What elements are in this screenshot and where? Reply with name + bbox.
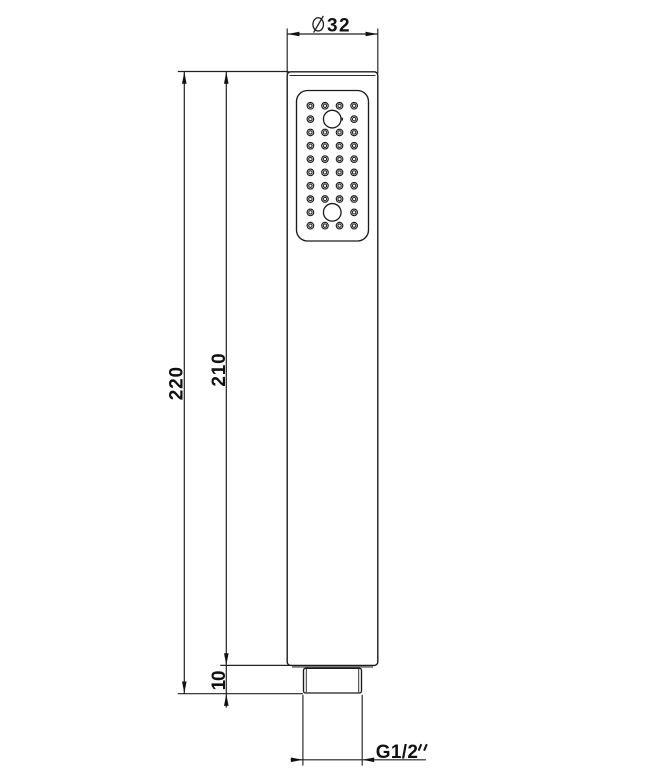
svg-text:G1/2: G1/2 bbox=[376, 742, 418, 763]
svg-text:220: 220 bbox=[167, 366, 188, 400]
svg-text:32: 32 bbox=[327, 16, 351, 37]
svg-text:10: 10 bbox=[209, 671, 230, 690]
svg-text:210: 210 bbox=[209, 352, 230, 386]
